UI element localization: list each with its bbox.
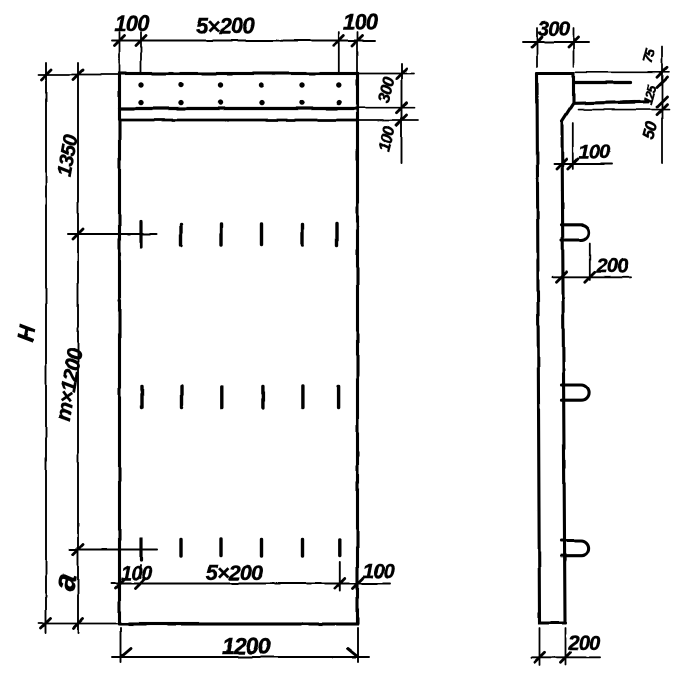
svg-text:100: 100 <box>114 11 150 36</box>
svg-text:300: 300 <box>538 18 571 41</box>
svg-text:200: 200 <box>568 633 601 655</box>
svg-text:100: 100 <box>343 10 379 35</box>
svg-text:200: 200 <box>596 256 629 278</box>
svg-text:1200: 1200 <box>222 633 271 659</box>
svg-text:100: 100 <box>363 561 395 583</box>
svg-text:5×200: 5×200 <box>196 14 255 39</box>
svg-text:100: 100 <box>579 142 611 164</box>
svg-text:100: 100 <box>121 563 153 585</box>
svg-text:5×200: 5×200 <box>206 561 263 585</box>
